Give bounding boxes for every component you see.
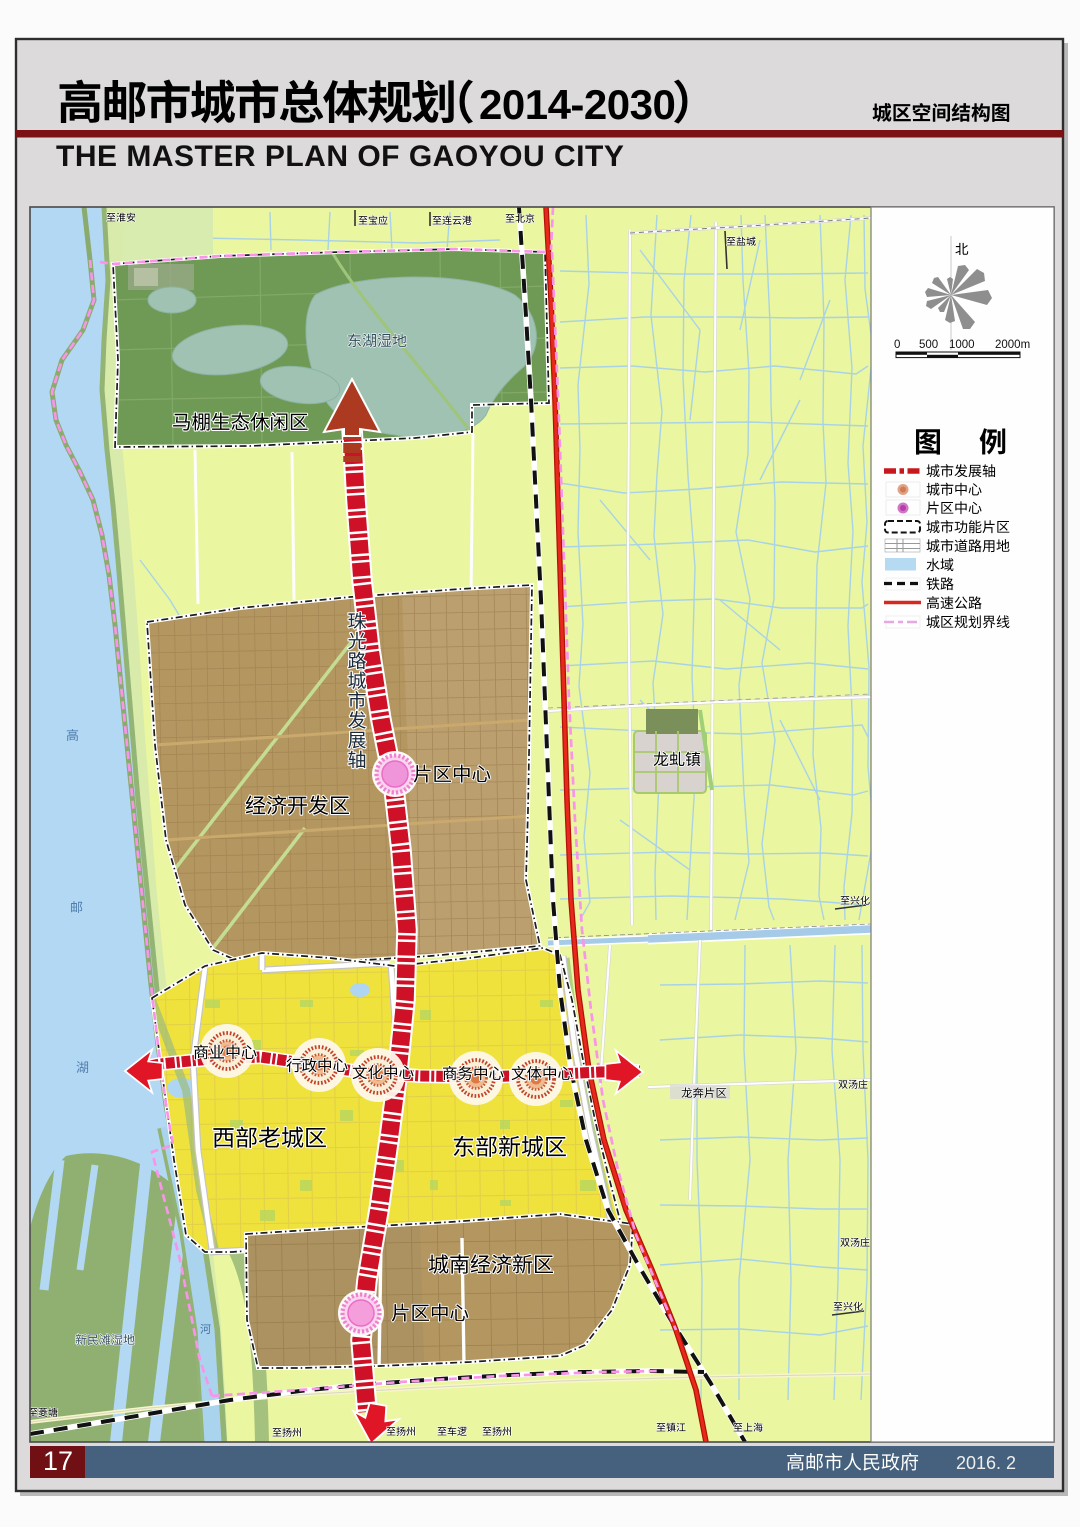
svg-text:17: 17 [43, 1446, 73, 1476]
svg-text:2000m: 2000m [995, 339, 1030, 351]
svg-text:1000: 1000 [949, 339, 975, 351]
svg-text:2016. 2: 2016. 2 [956, 1453, 1016, 1473]
svg-text:THE MASTER PLAN OF GAOYOU CITY: THE MASTER PLAN OF GAOYOU CITY [56, 140, 624, 173]
svg-text:500: 500 [919, 339, 938, 351]
svg-text:2014-2030: 2014-2030 [479, 81, 675, 128]
svg-text:0: 0 [894, 339, 900, 351]
